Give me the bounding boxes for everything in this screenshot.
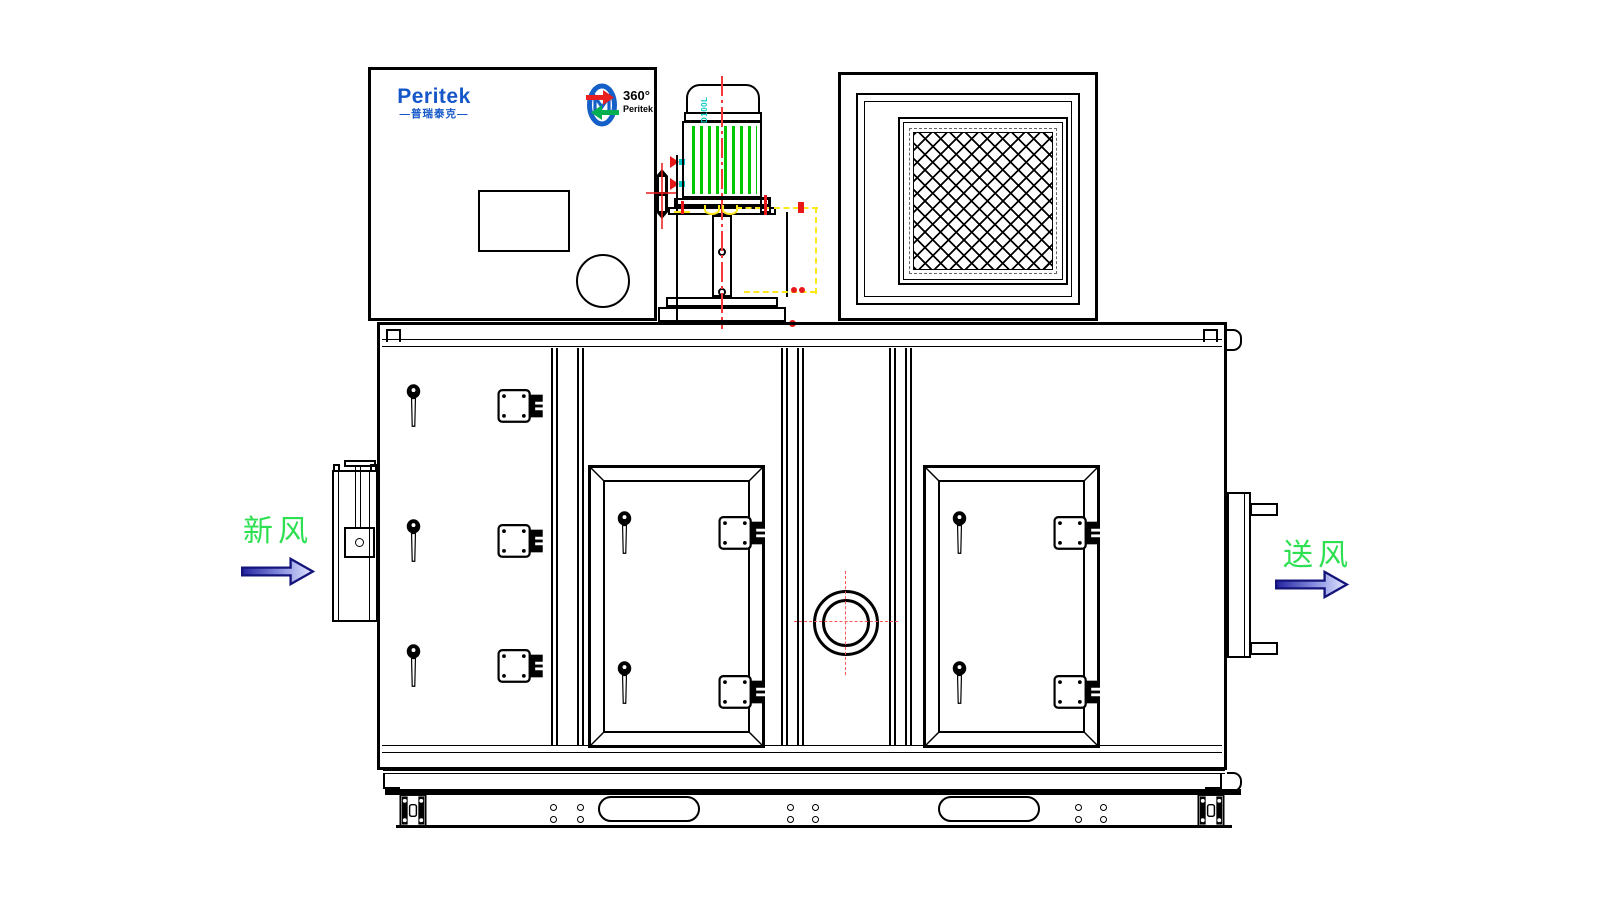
cabinet-seam <box>781 348 788 745</box>
door-handle-icon <box>406 383 421 429</box>
motor-model-label: D100L <box>700 87 712 123</box>
red-bolt-marker <box>798 202 804 213</box>
door-handle-icon <box>406 518 421 564</box>
red-bolt-dot <box>799 287 805 293</box>
anchor-bolt-hole <box>812 816 819 823</box>
logo-degrees-label: 360° <box>623 88 650 103</box>
door-hinge-icon <box>497 649 545 683</box>
forklift-slot <box>938 796 1040 822</box>
door-hinge-icon <box>1053 516 1101 550</box>
door-handle-icon <box>617 510 632 556</box>
duct-hook <box>333 464 340 472</box>
filter-mesh <box>913 132 1053 270</box>
brand-name-label: Peritek <box>386 86 482 108</box>
base-corner-step <box>1205 773 1222 789</box>
anchor-bolt-hole <box>812 804 819 811</box>
red-bolt-dot <box>791 287 797 293</box>
yellow-dash-right <box>815 207 817 294</box>
corner-tab <box>386 329 401 342</box>
outlet-flange-top <box>1250 503 1278 516</box>
stand-right-line <box>786 212 788 297</box>
damper-actuator-knob <box>355 538 364 547</box>
base-foot-icon <box>399 794 427 827</box>
base-corner-step <box>383 773 400 789</box>
logo-brand-label: Peritek <box>623 104 654 114</box>
yellow-dash-bottom <box>744 291 816 293</box>
anchor-bolt-hole <box>787 816 794 823</box>
door-hinge-icon <box>497 524 545 558</box>
porthole-inner-ring <box>822 599 870 647</box>
anchor-bolt-hole <box>1075 816 1082 823</box>
cabinet-bottom-rail-line <box>382 752 1222 753</box>
outlet-flange-bottom <box>1250 642 1278 655</box>
drawing-canvas: Peritek —普瑞泰克— 360° Peritek D100L <box>0 0 1613 897</box>
supply-air-outlet-duct <box>1227 492 1251 658</box>
outlet-duct-wall-line <box>1244 494 1245 656</box>
brand-name-cn-label: —普瑞泰克— <box>386 108 482 120</box>
inlet-duct-wall-line <box>338 472 339 620</box>
base-foot-icon <box>1197 794 1225 827</box>
motor-centerline <box>721 76 723 329</box>
cabinet-seam <box>905 348 912 745</box>
door-handle-icon <box>617 660 632 706</box>
anchor-bolt-hole <box>1075 804 1082 811</box>
anchor-bolt-hole <box>787 804 794 811</box>
damper-rod <box>355 467 361 528</box>
corner-tab <box>1203 329 1218 342</box>
anchor-bolt-hole <box>577 804 584 811</box>
brand-wordmark: Peritek —普瑞泰克— <box>386 86 482 120</box>
door-handle-icon <box>952 660 967 706</box>
base-beam <box>385 789 1241 795</box>
cabinet-seam <box>577 348 584 745</box>
rotor-logo-icon: 360° Peritek <box>583 82 663 128</box>
red-tick <box>681 201 684 214</box>
lifting-hook <box>1227 329 1242 351</box>
door-hinge-icon <box>1053 675 1101 709</box>
yellow-arc-mark <box>704 205 720 215</box>
door-hinge-icon <box>718 675 766 709</box>
door-handle-icon <box>952 510 967 556</box>
porthole-crosshair-v <box>845 571 846 675</box>
cabinet-seam <box>797 348 804 745</box>
cabinet-top-rail-line <box>382 346 1222 347</box>
cabinet-seam <box>889 348 896 745</box>
supply-air-label: 送风 <box>1283 530 1353 574</box>
door-hinge-icon <box>497 389 545 423</box>
cabinet-seam <box>551 348 558 745</box>
supply-air-arrow-icon <box>1274 569 1350 600</box>
anchor-bolt-hole <box>577 816 584 823</box>
panel-cutout-rect <box>478 190 570 252</box>
forklift-slot <box>598 796 700 822</box>
porthole-crosshair-h <box>794 621 898 622</box>
fresh-air-label: 新风 <box>243 506 313 550</box>
base-bottom-line <box>396 825 1232 828</box>
door-handle-icon <box>406 643 421 689</box>
anchor-bolt-hole <box>1100 816 1107 823</box>
fresh-air-arrow-icon <box>240 556 316 587</box>
anchor-bolt-hole <box>550 816 557 823</box>
panel-cutout-circle <box>576 254 630 308</box>
motor-dome <box>686 84 760 114</box>
yellow-dash-top <box>736 207 818 209</box>
anchor-bolt-hole <box>550 804 557 811</box>
cabinet-top-rail-line <box>382 339 1222 340</box>
duct-hook <box>370 464 377 472</box>
base-rim-lines <box>383 770 1225 774</box>
door-hinge-icon <box>718 516 766 550</box>
anchor-bolt-hole <box>1100 804 1107 811</box>
red-bolt-marker <box>764 195 767 215</box>
